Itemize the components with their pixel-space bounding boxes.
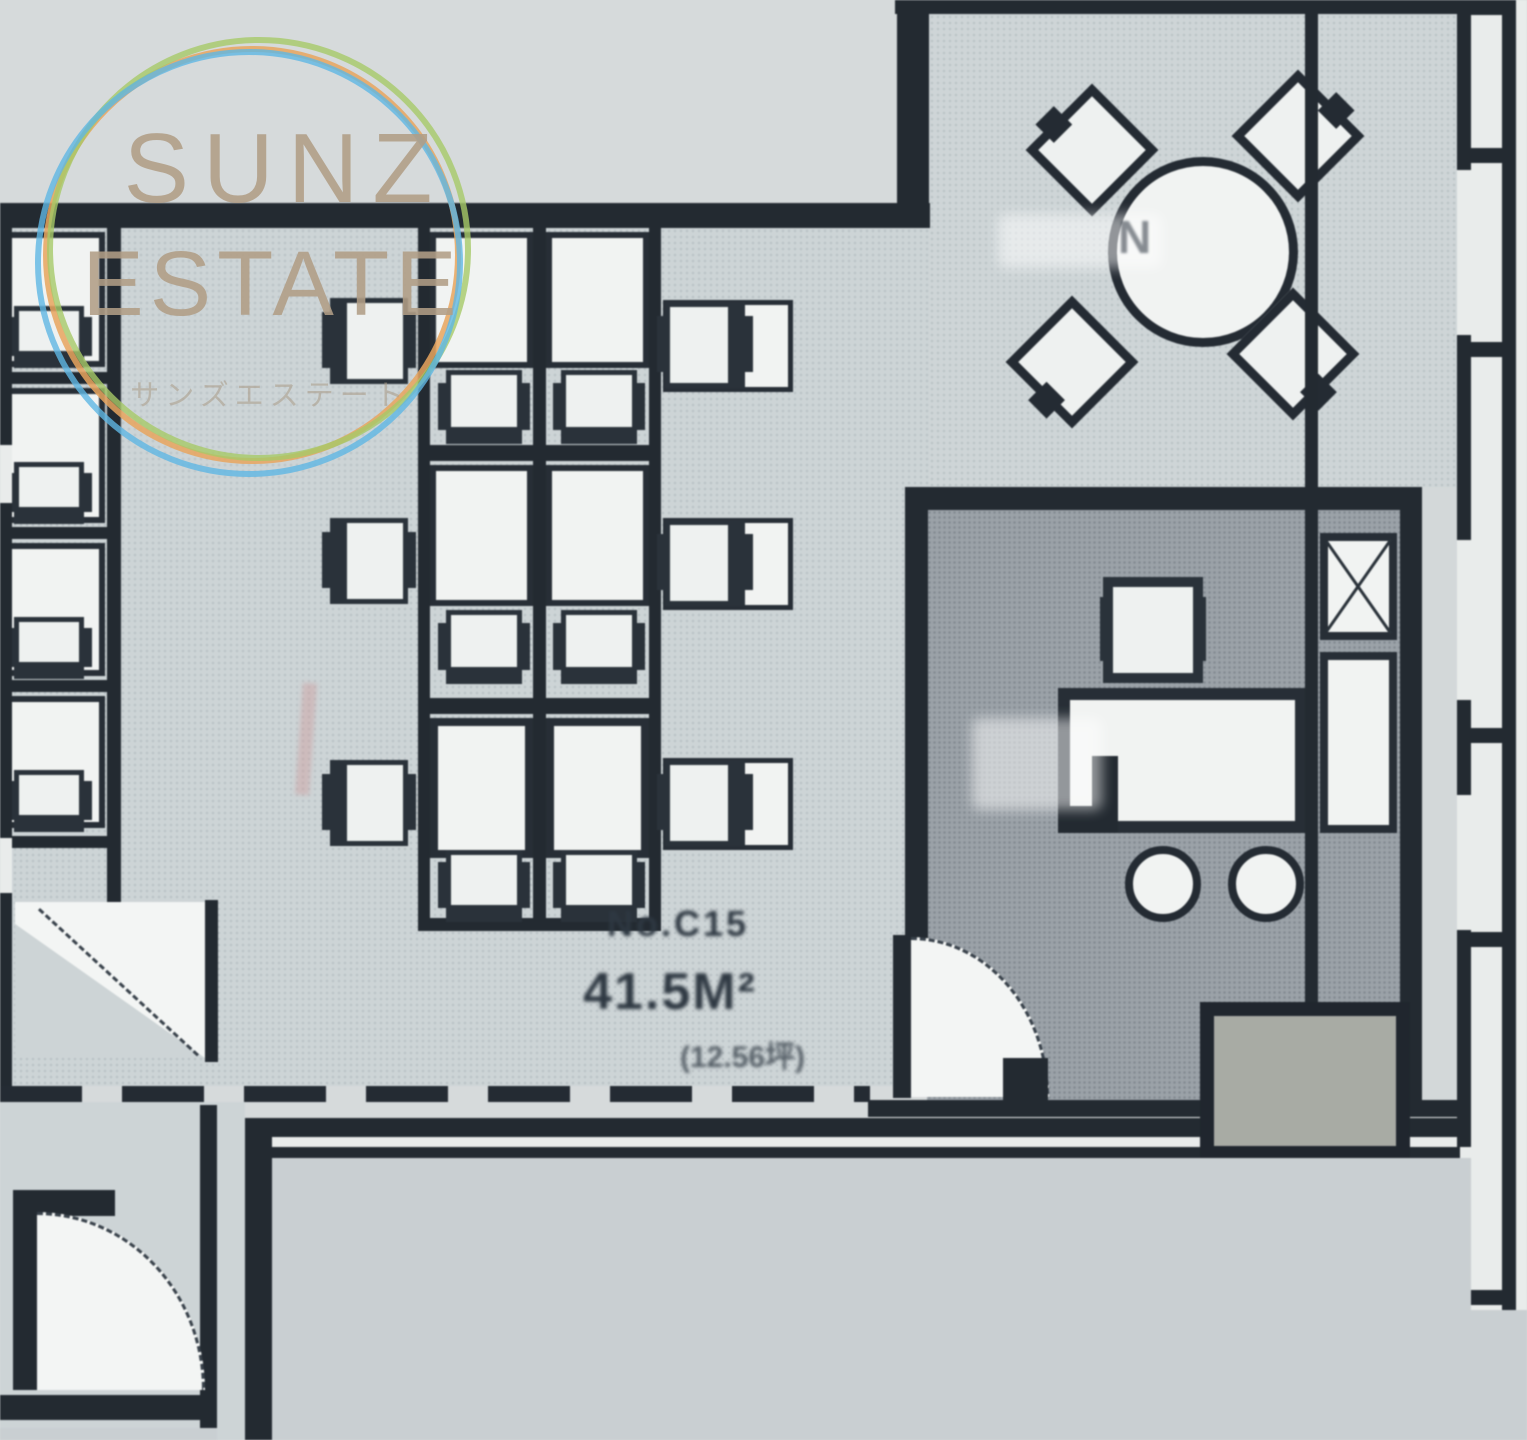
shaft-box	[1200, 1002, 1410, 1160]
wall	[0, 680, 121, 692]
inner-room-wall	[905, 487, 1422, 510]
window-wall	[1457, 700, 1471, 795]
wall	[897, 0, 929, 228]
wall	[205, 900, 218, 1062]
area-label-line1: No.C15	[558, 903, 798, 945]
area-label-line2: 41.5M²	[535, 962, 805, 1022]
office-chair	[561, 610, 637, 684]
brand-subtitle: ESTATE	[70, 232, 475, 337]
dashed-boundary	[0, 1086, 870, 1102]
cabinet	[1320, 533, 1397, 640]
office-chair	[14, 770, 84, 832]
window-wall	[1457, 0, 1471, 170]
wall	[0, 527, 121, 539]
wall	[0, 836, 121, 848]
desk	[546, 718, 649, 858]
window-wall	[1502, 0, 1516, 1310]
lower-flat-area	[0, 1428, 217, 1440]
wall	[895, 0, 1460, 14]
door-panel	[13, 1205, 37, 1390]
office-chair	[561, 370, 637, 444]
desk	[546, 232, 649, 368]
brand-caption: サンズエステート	[120, 372, 420, 414]
lower-flat-area	[272, 1158, 1471, 1440]
window-gap	[0, 838, 12, 893]
lower-area-wall	[245, 1118, 272, 1440]
window-tick	[1457, 342, 1516, 357]
office-chair	[446, 610, 522, 684]
window-tick	[1457, 932, 1516, 947]
desk-return	[1320, 652, 1397, 833]
area-label-line3: (12.56坪)	[580, 1032, 805, 1076]
side-strip-floor	[1422, 487, 1457, 1100]
window-tick	[1457, 728, 1516, 743]
island-frame	[533, 228, 546, 931]
window-tick	[1457, 148, 1516, 163]
door-stop	[1003, 1058, 1048, 1100]
office-chair	[1103, 577, 1203, 683]
office-chair	[14, 617, 84, 679]
window-wall	[1457, 335, 1471, 540]
lower-flat-area	[1471, 1310, 1527, 1440]
wall	[0, 1395, 217, 1420]
desk	[430, 718, 533, 858]
door-panel	[893, 935, 911, 1098]
meeting-table-mark: N	[1118, 210, 1151, 264]
office-chair	[330, 760, 408, 846]
watermark-logo: SUNZ ESTATE サンズエステート	[0, 0, 520, 520]
office-chair	[665, 520, 745, 606]
inner-room-wall	[905, 487, 928, 942]
office-chair	[330, 518, 408, 604]
faded-label	[972, 718, 1102, 810]
round-chair	[1228, 846, 1304, 922]
desk-detail	[1058, 806, 1118, 833]
window-tick	[1457, 0, 1516, 15]
island-frame	[418, 698, 661, 714]
office-chair	[665, 302, 745, 388]
office-chair	[665, 760, 745, 846]
office-chair	[446, 850, 522, 922]
floor-plan: N	[0, 0, 1527, 1440]
window-wall	[1457, 930, 1471, 1147]
desk	[546, 465, 649, 606]
round-chair	[1125, 846, 1201, 922]
brand-title: SUNZ	[110, 112, 460, 225]
